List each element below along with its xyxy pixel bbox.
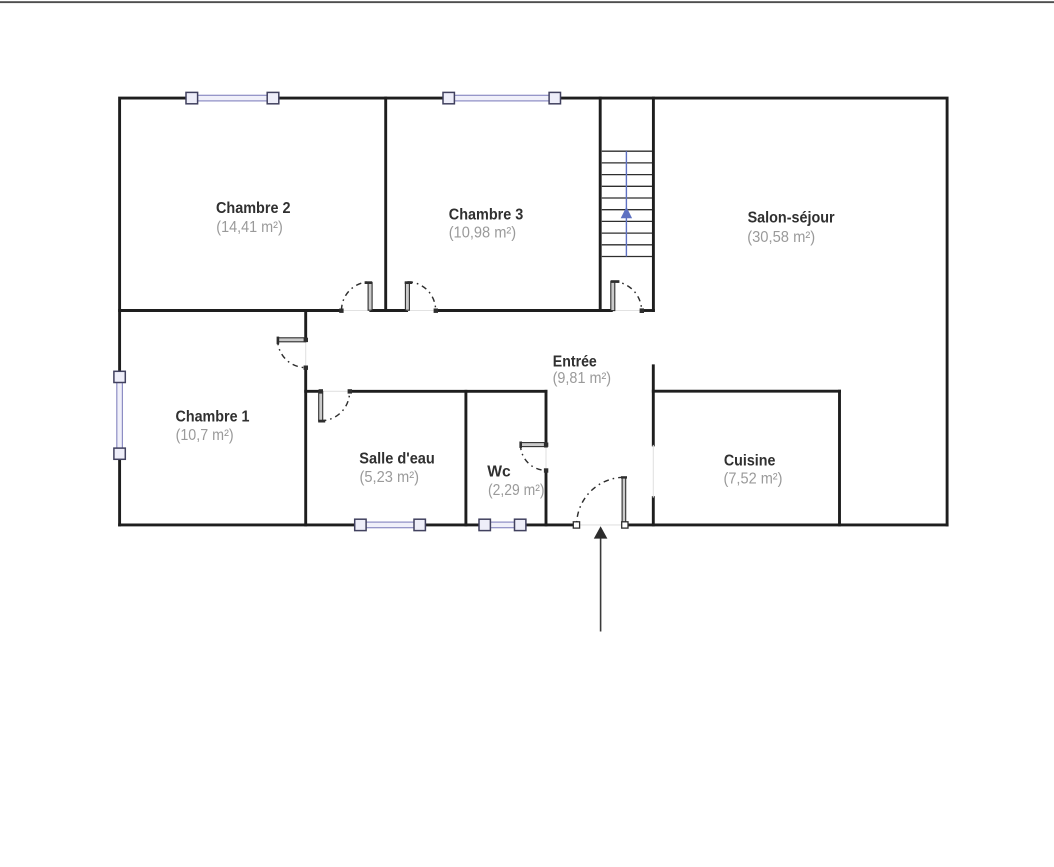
svg-text:(7,52 m²): (7,52 m²) [724, 471, 783, 488]
svg-text:Chambre 2: Chambre 2 [216, 200, 291, 217]
svg-text:(10,98 m²): (10,98 m²) [449, 224, 517, 241]
svg-text:(10,7 m²): (10,7 m²) [176, 427, 234, 444]
svg-text:(9,81 m²): (9,81 m²) [553, 370, 612, 387]
svg-text:Wc: Wc [487, 464, 511, 481]
svg-text:Salle d'eau: Salle d'eau [359, 450, 435, 467]
svg-text:Entrée: Entrée [553, 354, 597, 371]
svg-text:Chambre 1: Chambre 1 [176, 409, 250, 426]
svg-text:(5,23 m²): (5,23 m²) [360, 469, 420, 486]
svg-text:(14,41 m²): (14,41 m²) [216, 219, 282, 236]
svg-text:(30,58 m²): (30,58 m²) [747, 229, 815, 246]
svg-text:Cuisine: Cuisine [724, 453, 776, 470]
svg-text:(2,29 m²): (2,29 m²) [488, 482, 545, 499]
svg-text:Salon-séjour: Salon-séjour [748, 209, 835, 226]
svg-text:Chambre 3: Chambre 3 [449, 206, 524, 223]
